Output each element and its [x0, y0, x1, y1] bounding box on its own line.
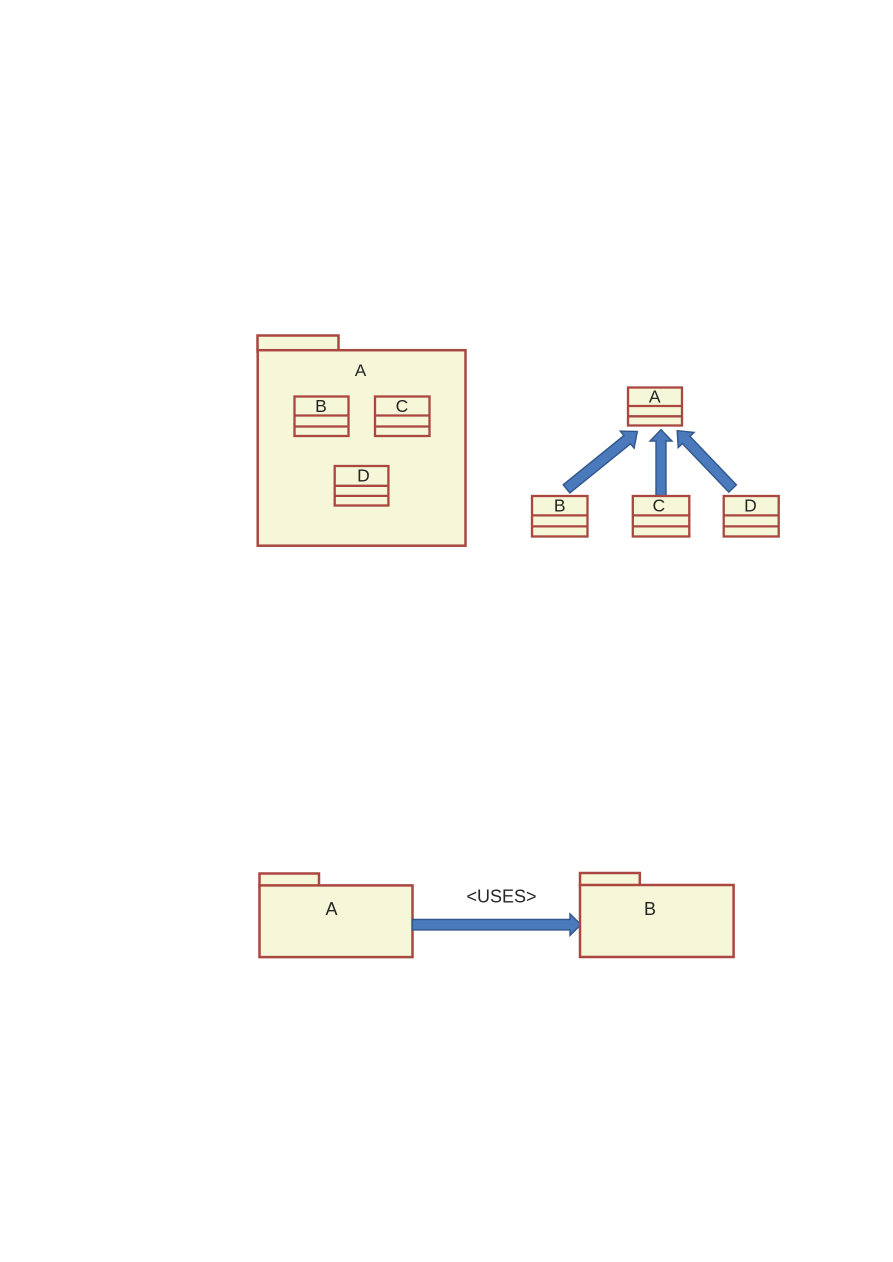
svg-text:A: A	[649, 387, 661, 407]
svg-text:D: D	[744, 496, 757, 516]
svg-text:C: C	[652, 496, 665, 516]
svg-text:B: B	[554, 496, 566, 516]
svg-text:A: A	[355, 361, 367, 380]
svg-text:A: A	[325, 899, 337, 919]
svg-text:C: C	[396, 396, 409, 416]
svg-text:<USES>: <USES>	[466, 887, 536, 907]
svg-text:B: B	[315, 396, 327, 416]
svg-text:D: D	[357, 466, 370, 486]
svg-text:B: B	[644, 899, 656, 919]
